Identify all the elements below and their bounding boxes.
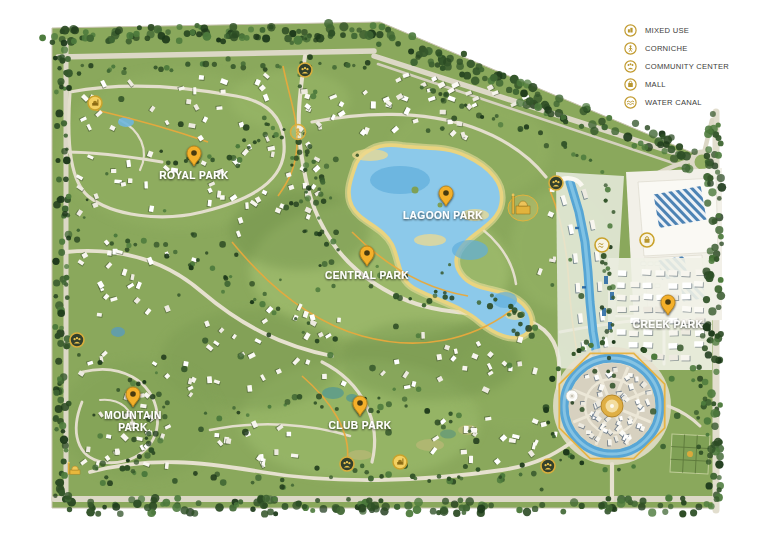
legend-label: MALL [645,78,666,91]
community-center-marker [549,176,563,190]
legend-label: WATER CANAL [645,96,702,109]
legend-label: MIXED USE [645,24,689,37]
legend-label: COMMUNITY CENTER [645,60,729,73]
community-center-icon [624,60,637,73]
corniche-marker [291,125,306,140]
legend-item-mixed-use: MIXED USE [624,24,729,37]
community-center-marker [70,333,84,347]
lagoon-park-label: LAGOON PARK [403,210,483,221]
central-park-label: CENTRAL PARK [325,270,409,281]
legend-item-water-canal: WATER CANAL [624,96,729,109]
water-canal-icon [624,96,637,109]
masterplan-page: ROYAL PARK LAGOON PARK CENTRAL PARK CREE… [0,0,768,543]
mosque-marker [88,96,102,110]
community-center-marker [340,457,354,471]
royal-park-label: ROYAL PARK [159,170,229,181]
legend-item-community-center: COMMUNITY CENTER [624,60,729,73]
community-center-marker [541,459,555,473]
water-canal-marker [595,238,609,252]
legend: MIXED USE CORNICHE COMMUNITY CENTER [624,24,729,109]
club-park-label: CLUB PARK [329,420,392,431]
legend-item-corniche: CORNICHE [624,42,729,55]
mixed-use-icon [624,24,637,37]
mosque-marker [393,455,407,469]
legend-label: CORNICHE [645,42,688,55]
legend-item-mall: MALL [624,78,729,91]
community-center-marker [298,63,312,77]
mall-marker [640,233,654,247]
creek-park-label: CREEK PARK [633,319,704,330]
corniche-icon [624,42,637,55]
mall-icon [624,78,637,91]
